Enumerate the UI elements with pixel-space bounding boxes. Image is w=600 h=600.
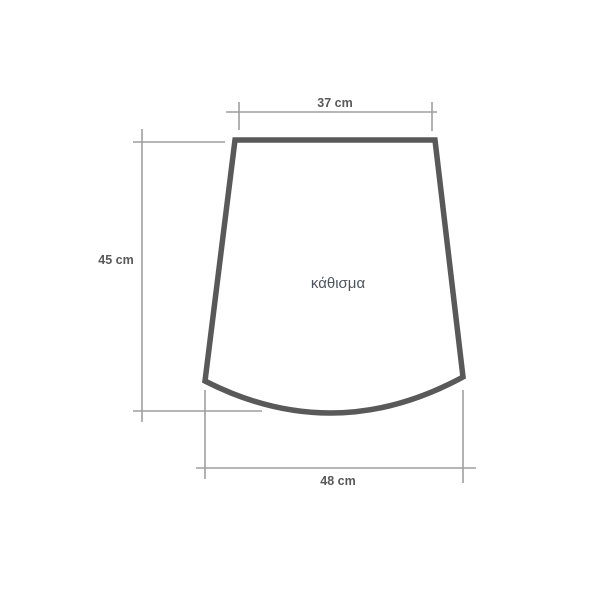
dim-bottom-label: 48 cm xyxy=(320,474,355,488)
dim-top-label: 37 cm xyxy=(317,96,352,110)
seat-pattern-diagram: 37 cm 45 cm 48 cm κάθισμα xyxy=(0,0,600,600)
diagram-svg: 37 cm 45 cm 48 cm κάθισμα xyxy=(0,0,600,600)
seat-shape-label: κάθισμα xyxy=(311,275,366,292)
dim-left-label: 45 cm xyxy=(98,253,133,267)
dimension-lines xyxy=(133,102,476,483)
